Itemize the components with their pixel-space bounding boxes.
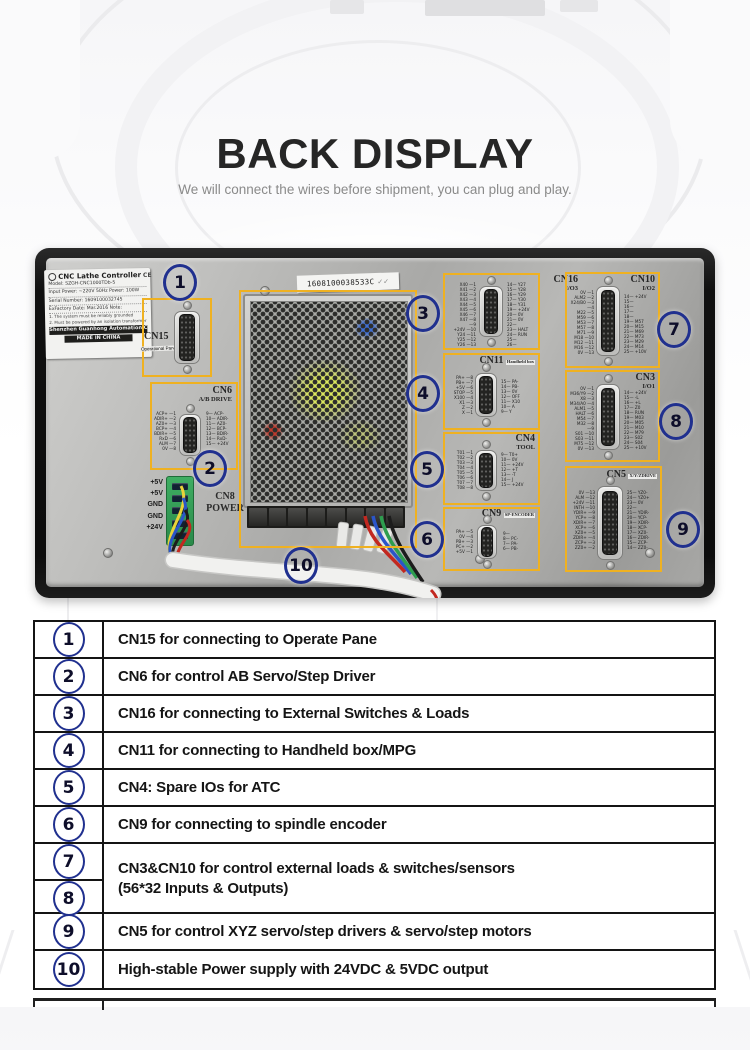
legend-row-9: 9 CN5 for control XYZ servo/step drivers…: [35, 914, 714, 951]
callout-box-cn4: CN4 TOOL T01 —1 T02 —2 T03 —3 T04 —4 T05…: [443, 432, 540, 505]
callout-box-cn5: CN5 X/Y/ZDRIVE 0V —13 ALM —12 +24V —11 I…: [565, 466, 662, 572]
callout-box-cn16: CN16 I/O3 X40 —1 X41 —2 X42 —3 X43 —4 X4…: [443, 273, 540, 350]
legend-num-7: 7: [53, 844, 85, 879]
cn3-connector: [596, 374, 620, 460]
legend-text-5: CN4: Spare IOs for ATC: [104, 770, 714, 805]
connector-screw: [183, 301, 192, 310]
legend-row-6: 6 CN9 for connecting to spindle encoder: [35, 807, 714, 844]
cn10-pins-left: 0V —1 ALM2 —2 X24/B0 —3 —4 M22 —5 M59 —6…: [567, 290, 594, 355]
callout-box-cn15: CN15 Operational Panel: [142, 298, 212, 377]
cn10-connector: [596, 276, 620, 366]
callout-box-cn3: CN3 I/O1 0V —1 M36/Y9 —2 X8 —3 M34/A0 —4…: [565, 370, 660, 462]
callout-box-cn11: CN11 Handheld box PA+ —8 PB+ —7 +5V —6 S…: [443, 353, 540, 430]
cn9-connector: [477, 515, 497, 569]
legend-num-2: 2: [53, 659, 85, 694]
callout-6: 6: [410, 521, 444, 558]
cn6-pins-right: 9— ACP- 10— ADIR- 11— AZ0- 12— BCP- 13— …: [206, 411, 229, 446]
cn3-pins-left: 0V —1 M36/Y9 —2 X8 —3 M34/A0 —4 ALM1 —5 …: [567, 386, 594, 451]
controller-back-photo: CNC Lathe Controller CE Model: SZGH-CNC1…: [35, 248, 715, 598]
page-title: BACK DISPLAY: [0, 130, 750, 178]
legend-row-3: 3 CN16 for connecting to External Switch…: [35, 696, 714, 733]
callout-5: 5: [410, 451, 444, 488]
cn3-label: CN3 I/O1: [636, 373, 655, 390]
legend-row-7-8: 7 8 CN3&CN10 for control external loads …: [35, 844, 714, 914]
legend-num-5: 5: [53, 770, 85, 805]
legend-num-8: 8: [53, 881, 85, 916]
background-detail: [560, 0, 598, 12]
cn11-pins-left: PA+ —8 PB+ —7 +5V —6 STOP —5 X100 —4 X1 …: [447, 375, 473, 415]
callout-2: 2: [193, 450, 227, 487]
cn5-pins-right: 25— YZ0- 24— YZ0+ 23— 0V 22— 21— YDIR- 2…: [627, 490, 649, 550]
legend-num-3: 3: [53, 696, 85, 731]
background-detail: [330, 0, 364, 14]
cn4-sublabel: TOOL: [516, 445, 535, 452]
legend-row-10: 10 High-stable Power supply with 24VDC &…: [35, 951, 714, 988]
legend-text-6: CN9 for connecting to spindle encoder: [104, 807, 714, 842]
cn15-sublabel: Operational Panel: [140, 345, 178, 351]
cn4-connector: [475, 440, 497, 501]
cn9-pins-right: 9— 8— PC- 7— PA- 6— PB-: [503, 531, 518, 551]
cn16-connector: [479, 276, 503, 347]
callout-1: 1: [163, 264, 197, 301]
callout-box-cn9: CN9 SP-ENCODER PA+ —5 0V —4 PB+ —3 PC+ —…: [443, 507, 540, 571]
callout-4: 4: [406, 375, 440, 412]
cn4-pins-right: 9— T0+ 10— 0V 11— +24V 12— +T 13— -T 14—…: [501, 452, 524, 487]
cn6-sublabel: A/B DRIVE: [199, 397, 232, 404]
hero-section: BACK DISPLAY We will connect the wires b…: [0, 130, 750, 197]
callout-10: 10: [284, 547, 318, 584]
legend-num-1: 1: [53, 622, 85, 657]
legend-text-2: CN6 for control AB Servo/Step Driver: [104, 659, 714, 694]
cn11-sublabel: Handheld box: [506, 360, 535, 365]
callout-8: 8: [659, 403, 693, 440]
legend-text-7-8: CN3&CN10 for control external loads & sw…: [104, 844, 714, 912]
cn11-pins-right: 15— PA- 14— PB- 13— 0V 12— OFF 11— X10 1…: [501, 379, 520, 414]
legend-next-row-clipped: [33, 998, 716, 1007]
cn10-pins-right: 14— +24V 15— 16— 17— 18— 19— M57 20— M15…: [624, 294, 647, 354]
legend-row-2: 2 CN6 for control AB Servo/Step Driver: [35, 659, 714, 696]
cn4-pins-left: T01 —1 T02 —2 T03 —3 T04 —4 T05 —5 T06 —…: [449, 450, 473, 490]
legend-row-1: 1 CN15 for connecting to Operate Pane: [35, 622, 714, 659]
cn5-connector: [597, 476, 623, 570]
cn10-label: CN10 I/O2: [631, 275, 655, 292]
background-line: [0, 930, 14, 1050]
legend-num-4: 4: [53, 733, 85, 768]
cn16-pins-left: X40 —1 X41 —2 X42 —3 X43 —4 X44 —5 X45 —…: [446, 282, 476, 347]
cn6-label: CN6 A/B DRIVE: [199, 386, 232, 403]
callout-box-cn10: CN10 I/O2 0V —1 ALM2 —2 X24/B0 —3 —4 M22…: [565, 272, 660, 368]
legend-text-4: CN11 for connecting to Handheld box/MPG: [104, 733, 714, 768]
cn16-pins-right: 14— Y27 15— Y28 16— Y29 17— Y30 18— Y31 …: [507, 282, 530, 347]
page-subtitle: We will connect the wires before shipmen…: [0, 182, 750, 197]
legend-row-5: 5 CN4: Spare IOs for ATC: [35, 770, 714, 807]
cn4-label: CN4 TOOL: [516, 434, 535, 451]
callout-9: 9: [666, 511, 700, 548]
cn15-label: CN15: [144, 332, 168, 343]
cn11-connector: [475, 363, 497, 427]
cn5-pins-left: 0V —13 ALM —12 +24V —11 INTH —10 YDIR+ —…: [567, 490, 595, 550]
legend-num-9: 9: [53, 914, 85, 949]
callout-box-cn6: CN6 A/B DRIVE ACP+ —1 ADIR+ —2 AZ0+ —3 B…: [150, 382, 238, 470]
legend-text-1: CN15 for connecting to Operate Pane: [104, 622, 714, 657]
legend-table: 1 CN15 for connecting to Operate Pane 2 …: [33, 620, 716, 990]
cn9-sublabel: SP-ENCODER: [504, 513, 535, 518]
cn9-pins-left: PA+ —5 0V —4 PB+ —3 PC+ —2 +5V —1: [451, 529, 473, 554]
cn10-sublabel: I/O2: [631, 286, 655, 293]
cn3-pins-right: 14— +24V 15— -L 16— +L 17— Z0 18— RUN 19…: [624, 390, 647, 450]
legend-text-9: CN5 for control XYZ servo/step drivers &…: [104, 914, 714, 949]
callout-box-power-supply: [239, 290, 417, 548]
legend-row-4: 4 CN11 for connecting to Handheld box/MP…: [35, 733, 714, 770]
background-detail: [425, 0, 545, 16]
callout-3: 3: [406, 295, 440, 332]
cn6-pins-left: ACP+ —1 ADIR+ —2 AZ0+ —3 BCP+ —4 BDIR+ —…: [152, 411, 176, 451]
legend-num-6: 6: [53, 807, 85, 842]
legend-text-10: High-stable Power supply with 24VDC & 5V…: [104, 951, 714, 988]
callout-7: 7: [657, 311, 691, 348]
legend-num-10: 10: [53, 952, 85, 987]
cn15-connector: [174, 301, 200, 374]
cn5-sublabel: X/Y/ZDRIVE: [628, 474, 657, 479]
legend-text-3: CN16 for connecting to External Switches…: [104, 696, 714, 731]
background-line: [734, 930, 750, 1050]
connector-screw: [183, 365, 192, 374]
